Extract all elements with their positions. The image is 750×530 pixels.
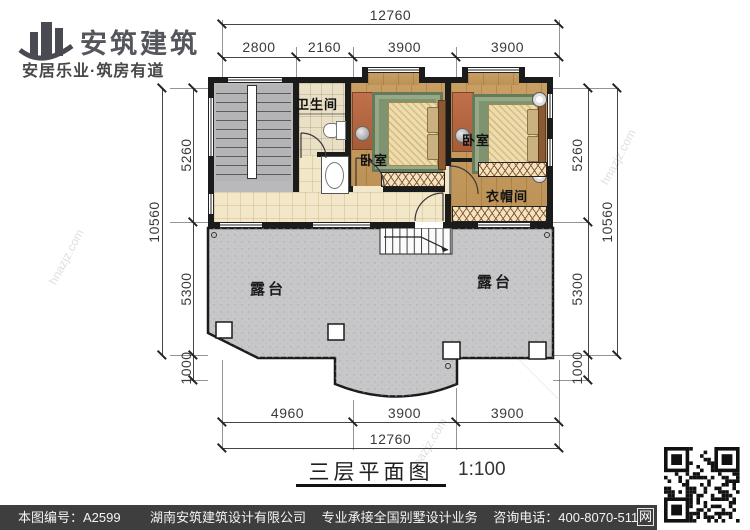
dim-line — [162, 88, 163, 355]
dim-bottom-seg: 3900 — [353, 405, 456, 421]
room-label-bedroom2: 卧室 — [462, 130, 490, 149]
dim-line — [170, 222, 208, 223]
dim-right-total: 10560 — [599, 187, 615, 257]
dim-line — [222, 422, 559, 423]
qr-code — [657, 440, 750, 530]
dim-right-seg: 1000 — [569, 333, 585, 403]
dim-line — [553, 355, 619, 356]
service-scope: 专业承接全国别墅设计业务 — [322, 510, 478, 525]
dim-top-seg: 2800 — [222, 39, 296, 55]
dim-line — [553, 222, 590, 223]
dim-right-seg: 5260 — [569, 120, 585, 190]
dim-right-seg: 5300 — [569, 254, 585, 324]
dim-top-seg: 3900 — [456, 39, 559, 55]
dim-line — [588, 88, 589, 380]
footer-company-line: 湖南安筑建筑设计有限公司 专业承接全国别墅设计业务 咨询电话：400-8070-… — [150, 505, 638, 530]
dim-line — [222, 448, 559, 449]
web-badge: 网 — [637, 508, 654, 526]
room-label-cloakroom: 衣帽间 — [486, 186, 528, 205]
room-label-bathroom: 卫生间 — [296, 94, 338, 113]
dim-line — [553, 88, 619, 89]
dim-bottom-seg: 4960 — [222, 405, 353, 421]
dim-line — [222, 24, 559, 25]
dim-line — [559, 20, 560, 77]
title-underline — [296, 484, 446, 487]
door-swings — [0, 0, 750, 530]
company-full-name: 湖南安筑建筑设计有限公司 — [150, 510, 306, 525]
dim-line — [617, 88, 618, 355]
floor-plan-sheet: 安筑建筑 安居乐业·筑房有道 hnazjz.com hnazjz.com hna… — [0, 0, 750, 530]
dim-left-seg: 5260 — [178, 120, 194, 190]
dim-top-seg: 2160 — [296, 39, 353, 55]
dim-line — [170, 88, 208, 89]
drawing-title: 三层平面图 — [296, 456, 446, 486]
dim-top-seg: 3900 — [353, 39, 456, 55]
dim-bottom-total: 12760 — [222, 431, 559, 447]
dim-left-seg: 1000 — [178, 333, 194, 403]
dim-bottom-seg: 3900 — [456, 405, 559, 421]
dim-left-total: 10560 — [146, 187, 162, 257]
dim-top-total: 12760 — [222, 7, 559, 23]
dim-left-seg: 5300 — [178, 254, 194, 324]
dim-line — [559, 360, 560, 450]
drawing-number: 本图编号：A2599 — [18, 505, 121, 530]
phone-number: 咨询电话：400-8070-511 — [493, 510, 638, 525]
drawing-scale: 1:100 — [458, 459, 506, 481]
dim-line — [222, 57, 559, 58]
room-label-bedroom1: 卧室 — [360, 150, 388, 169]
